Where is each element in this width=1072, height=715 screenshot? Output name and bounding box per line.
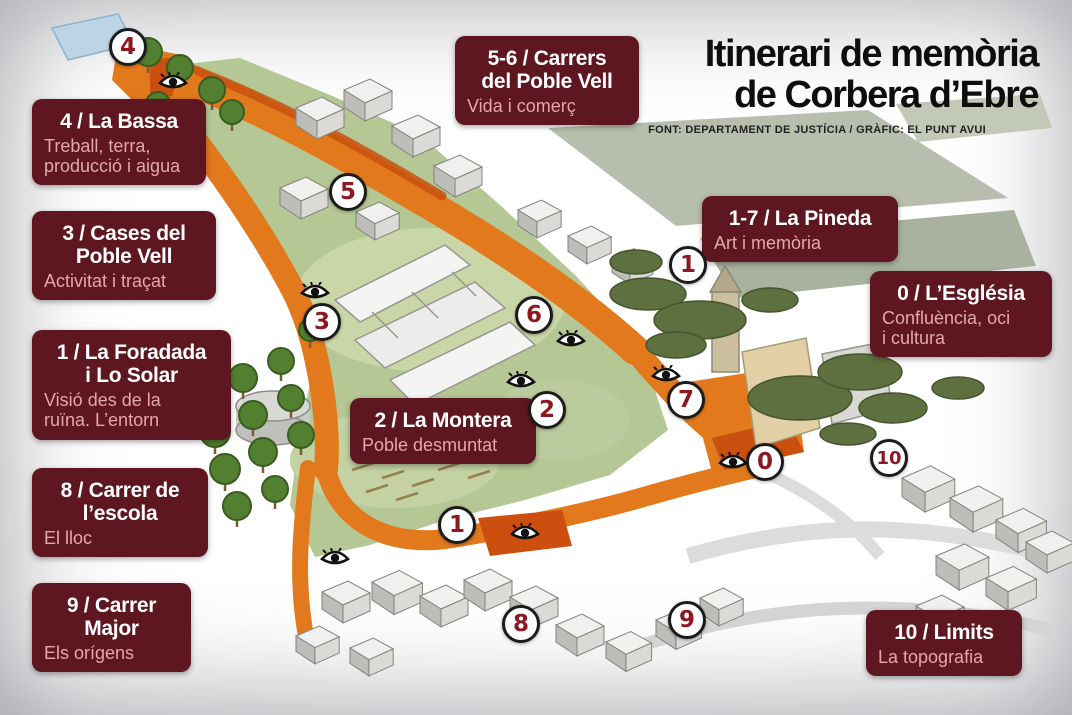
eye-icon <box>300 282 330 302</box>
map-marker-2: 2 <box>528 391 566 429</box>
eye-icon <box>506 371 536 391</box>
label-subtitle: Visió des de la ruïna. L’entorn <box>44 390 219 430</box>
label-subtitle: Vida i comerç <box>467 96 627 116</box>
label-box-la-montera: 2 / La Montera Poble desmuntat <box>350 398 536 464</box>
marker-number: 8 <box>513 611 529 637</box>
label-title: 1 / La Foradada i Lo Solar <box>44 341 219 387</box>
label-title: 8 / Carrer de l’escola <box>44 479 196 525</box>
label-box-la-pineda: 1-7 / La Pineda Art i memòria <box>702 196 898 262</box>
eye-icon <box>320 548 350 568</box>
label-title: 9 / Carrer Major <box>44 594 179 640</box>
eye-icon <box>651 365 681 385</box>
label-subtitle: Treball, terra, producció i aigua <box>44 136 194 176</box>
label-box-cases-poble-vell: 3 / Cases del Poble Vell Activitat i tra… <box>32 211 216 300</box>
label-subtitle: El lloc <box>44 528 196 548</box>
map-marker-9: 9 <box>668 601 706 639</box>
map-marker-6: 6 <box>515 296 553 334</box>
label-box-la-foradada: 1 / La Foradada i Lo Solar Visió des de … <box>32 330 231 440</box>
label-box-carrer-major: 9 / Carrer Major Els orígens <box>32 583 191 672</box>
title-line-1: Itinerari de memòria <box>608 34 1038 75</box>
page-title: Itinerari de memòria de Corbera d’Ebre F… <box>608 34 1038 136</box>
label-title: 0 / L’Església <box>882 282 1040 305</box>
marker-number: 1 <box>449 512 465 538</box>
label-title: 1-7 / La Pineda <box>714 207 886 230</box>
map-marker-4: 4 <box>109 28 147 66</box>
marker-number: 1 <box>680 252 696 278</box>
map-marker-1-foradada: 1 <box>438 506 476 544</box>
title-line-2: de Corbera d’Ebre <box>608 75 1038 116</box>
marker-number: 5 <box>340 179 356 205</box>
map-marker-0: 0 <box>746 443 784 481</box>
label-box-la-bassa: 4 / La Bassa Treball, terra, producció i… <box>32 99 206 185</box>
label-box-limits: 10 / Limits La topografia <box>866 610 1022 676</box>
label-subtitle: Confluència, oci i cultura <box>882 308 1040 348</box>
label-title: 2 / La Montera <box>362 409 524 432</box>
marker-number: 6 <box>526 302 542 328</box>
label-subtitle: La topografia <box>878 647 1010 667</box>
label-box-carrer-escola: 8 / Carrer de l’escola El lloc <box>32 468 208 557</box>
marker-number: 7 <box>678 387 694 413</box>
label-subtitle: Activitat i traçat <box>44 271 204 291</box>
map-marker-10: 10 <box>870 439 908 477</box>
marker-number: 0 <box>757 449 773 475</box>
map-marker-8: 8 <box>502 605 540 643</box>
map-marker-5: 5 <box>329 173 367 211</box>
label-subtitle: Els orígens <box>44 643 179 663</box>
map-marker-1-pineda: 1 <box>669 246 707 284</box>
label-title: 5-6 / Carrers del Poble Vell <box>467 47 627 93</box>
map-marker-7: 7 <box>667 381 705 419</box>
eye-icon <box>510 523 540 543</box>
label-title: 4 / La Bassa <box>44 110 194 133</box>
marker-number: 9 <box>679 607 695 633</box>
label-title: 10 / Limits <box>878 621 1010 644</box>
eye-icon <box>158 72 188 92</box>
marker-number: 10 <box>876 448 901 469</box>
label-box-esglesia: 0 / L’Església Confluència, oci i cultur… <box>870 271 1052 357</box>
label-title: 3 / Cases del Poble Vell <box>44 222 204 268</box>
label-subtitle: Poble desmuntat <box>362 435 524 455</box>
map-marker-3: 3 <box>303 303 341 341</box>
marker-number: 3 <box>314 309 330 335</box>
eye-icon <box>718 452 748 472</box>
marker-number: 2 <box>539 397 555 423</box>
marker-number: 4 <box>120 34 136 60</box>
label-subtitle: Art i memòria <box>714 233 886 253</box>
eye-icon <box>556 330 586 350</box>
infographic-canvas: Itinerari de memòria de Corbera d’Ebre F… <box>0 0 1072 715</box>
credits: FONT: DEPARTAMENT DE JUSTÍCIA / GRÀFIC: … <box>608 124 1038 136</box>
